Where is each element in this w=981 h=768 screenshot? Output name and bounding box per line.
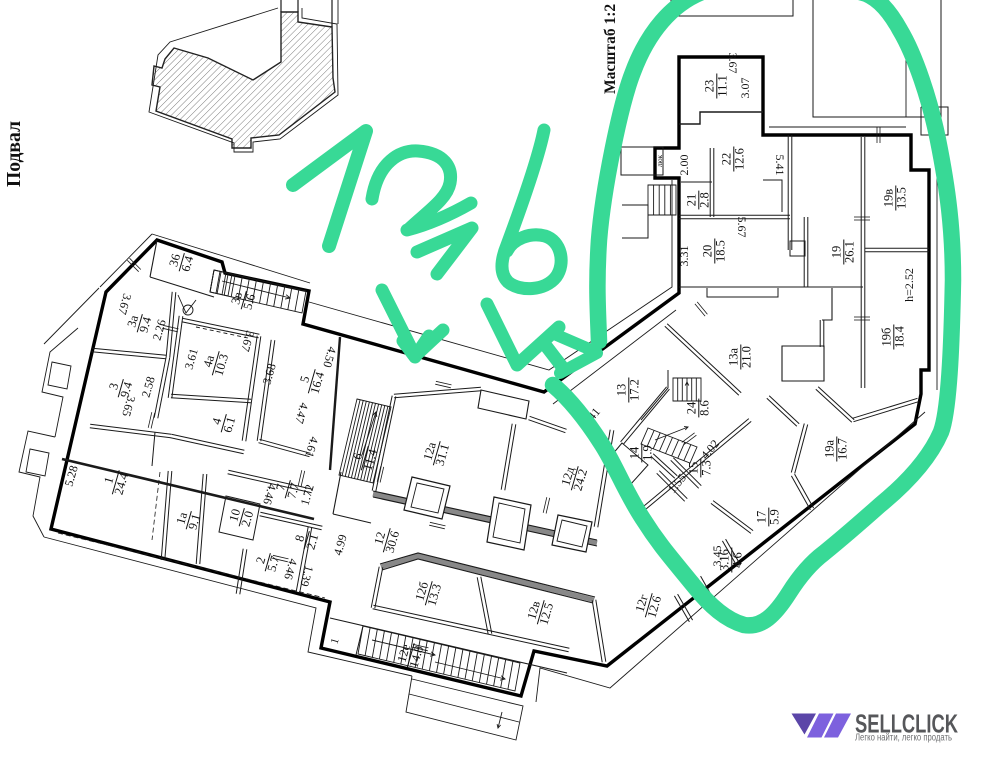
svg-text:20: 20 — [701, 245, 715, 258]
svg-text:Подвал: Подвал — [3, 121, 25, 187]
svg-text:13а: 13а — [727, 348, 741, 367]
svg-text:Масштаб 1:2: Масштаб 1:2 — [602, 4, 619, 94]
svg-text:4.6: 4.6 — [731, 552, 745, 568]
svg-text:1.9: 1.9 — [641, 445, 655, 461]
svg-text:18.4: 18.4 — [893, 325, 907, 348]
svg-text:23: 23 — [703, 80, 717, 93]
svg-text:22: 22 — [720, 153, 734, 166]
svg-text:24: 24 — [685, 401, 699, 414]
svg-text:13.5: 13.5 — [895, 187, 909, 209]
svg-text:17.2: 17.2 — [628, 379, 642, 401]
svg-text:21: 21 — [685, 194, 699, 207]
svg-text:5.9: 5.9 — [768, 509, 782, 525]
svg-text:3.31: 3.31 — [677, 246, 691, 267]
svg-text:19: 19 — [830, 246, 844, 259]
svg-text:3.67: 3.67 — [726, 53, 740, 74]
svg-text:16.7: 16.7 — [836, 438, 850, 460]
svg-text:17: 17 — [755, 511, 769, 524]
svg-text:18.5: 18.5 — [714, 240, 728, 262]
svg-text:Легко найти, легко продать: Легко найти, легко продать — [855, 733, 952, 744]
svg-text:19б: 19б — [880, 328, 894, 347]
svg-text:14: 14 — [628, 446, 642, 459]
svg-text:2.8: 2.8 — [698, 192, 712, 208]
svg-text:19а: 19а — [823, 440, 837, 459]
svg-text:26.1: 26.1 — [843, 241, 857, 263]
svg-text:8.6: 8.6 — [698, 400, 712, 416]
svg-text:2.00: 2.00 — [677, 155, 691, 176]
svg-text:h=2.52: h=2.52 — [902, 268, 916, 302]
svg-text:люк: люк — [656, 154, 664, 167]
svg-text:3.16: 3.16 — [718, 549, 732, 571]
svg-text:11.1: 11.1 — [716, 75, 730, 96]
svg-text:15: 15 — [687, 462, 701, 475]
svg-text:5.67: 5.67 — [735, 217, 749, 238]
svg-text:7.3: 7.3 — [700, 460, 714, 476]
svg-text:21.0: 21.0 — [740, 346, 754, 368]
svg-text:12.6: 12.6 — [733, 148, 747, 170]
svg-text:3.07: 3.07 — [738, 78, 752, 99]
svg-text:13: 13 — [615, 384, 629, 397]
svg-text:5.41: 5.41 — [773, 155, 787, 176]
svg-text:19в: 19в — [882, 189, 896, 208]
